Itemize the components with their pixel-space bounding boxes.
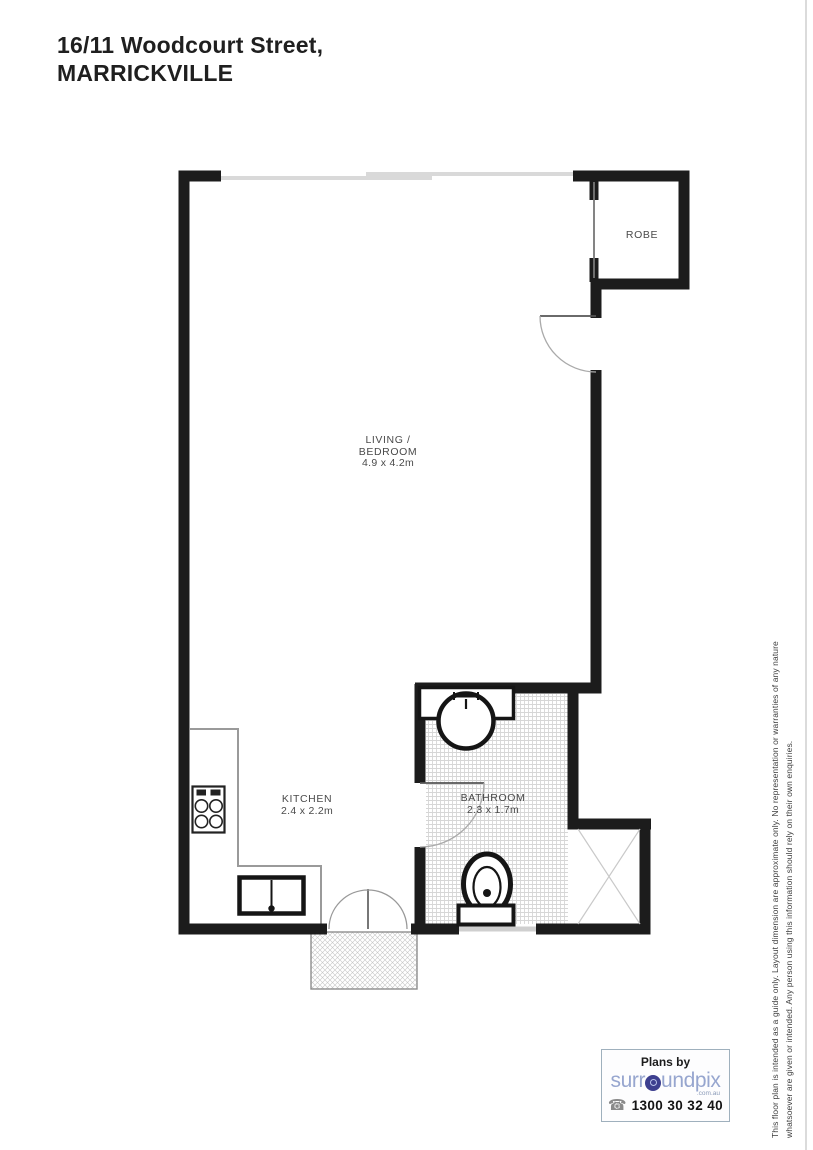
living-name-line1: LIVING / <box>308 435 468 447</box>
robe-name: ROBE <box>601 230 683 242</box>
entry-door <box>540 316 596 372</box>
french-doors <box>329 889 407 929</box>
robe-label: ROBE <box>601 230 683 242</box>
telephone-icon: ☎ <box>608 1098 627 1113</box>
globe-icon <box>645 1075 661 1091</box>
floor-plan-drawing <box>0 0 813 1150</box>
globe-core <box>650 1079 657 1086</box>
kitchen-sink-icon <box>240 878 304 914</box>
shower-icon <box>578 829 640 924</box>
page-edge-line <box>805 0 807 1150</box>
disclaimer-line2: whatsoever are given or intended. Any pe… <box>782 538 796 1138</box>
wall-bathroom-right <box>573 684 651 824</box>
brand-logo: surrundpix <box>602 1070 729 1092</box>
living-dimensions: 4.9 x 4.2m <box>308 458 468 470</box>
living-room-label: LIVING / BEDROOM 4.9 x 4.2m <box>308 435 468 470</box>
wall-right-and-bathroom-top <box>415 370 596 688</box>
brand-domain: .com.au <box>602 1090 720 1097</box>
bathroom-dimensions: 2.3 x 1.7m <box>423 805 563 817</box>
branding-box: Plans by surrundpix .com.au ☎ 1300 30 32… <box>601 1049 730 1122</box>
disclaimer-line1: This floor plan is intended as a guide o… <box>768 538 782 1138</box>
kitchen-dimensions: 2.4 x 2.2m <box>237 806 377 818</box>
toilet-icon <box>459 854 514 925</box>
disclaimer-text: This floor plan is intended as a guide o… <box>768 538 796 1138</box>
balcony <box>311 932 417 989</box>
bathroom-name: BATHROOM <box>423 793 563 805</box>
stove-icon <box>193 787 225 833</box>
kitchen-label: KITCHEN 2.4 x 2.2m <box>237 794 377 817</box>
phone-row: ☎ 1300 30 32 40 <box>602 1098 729 1113</box>
floor-plan-page: 16/11 Woodcourt Street, MARRICKVILLE <box>0 0 813 1150</box>
bathroom-label: BATHROOM 2.3 x 1.7m <box>423 793 563 816</box>
plans-by-label: Plans by <box>602 1055 729 1069</box>
phone-number: 1300 30 32 40 <box>632 1098 724 1113</box>
kitchen-name: KITCHEN <box>237 794 377 806</box>
